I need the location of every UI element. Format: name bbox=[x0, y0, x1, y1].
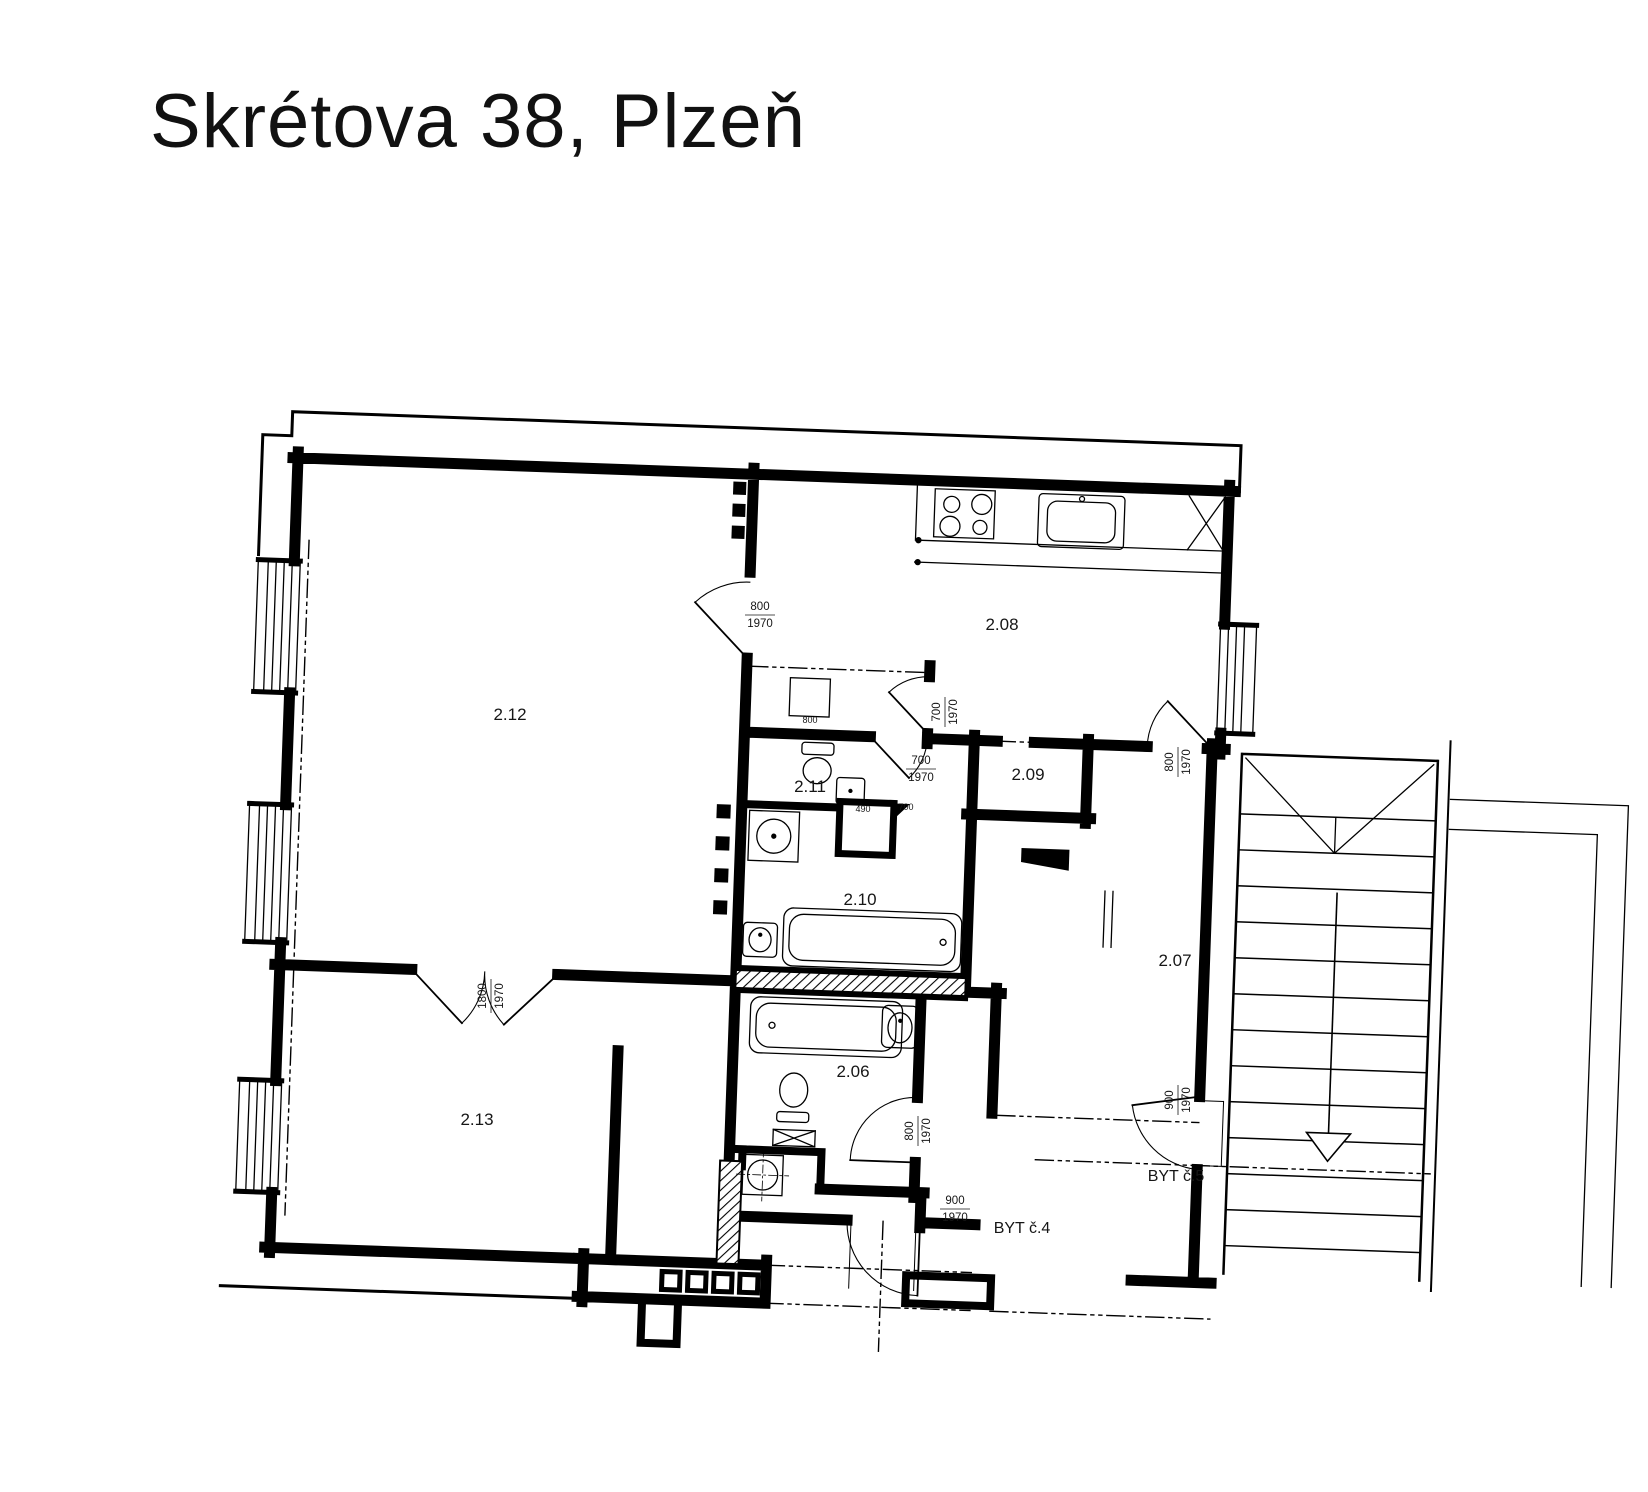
hatched-wall-vertical bbox=[716, 1160, 742, 1264]
floor-drain-icon bbox=[736, 1148, 790, 1202]
neighbour-contour bbox=[1431, 741, 1451, 1291]
door-dim-kitchen: 700 1970 bbox=[931, 697, 960, 727]
sink-2-10 bbox=[742, 922, 777, 957]
room-label-2-12: 2.12 bbox=[493, 705, 526, 724]
svg-text:1970: 1970 bbox=[494, 983, 506, 1009]
kitchen-counter bbox=[915, 486, 1226, 575]
room-label-2-06: 2.06 bbox=[836, 1062, 869, 1081]
kitchen-sink-icon bbox=[1037, 493, 1125, 549]
svg-text:1970: 1970 bbox=[921, 1118, 933, 1144]
svg-text:900: 900 bbox=[945, 1195, 964, 1207]
svg-text:1800: 1800 bbox=[477, 983, 489, 1009]
small-dim-700: 700 bbox=[898, 802, 913, 812]
walls-thick bbox=[263, 452, 1239, 1324]
svg-text:1970: 1970 bbox=[747, 618, 773, 630]
corridor-frame bbox=[1103, 891, 1113, 947]
boundary-lines bbox=[281, 540, 1452, 1370]
svg-text:700: 700 bbox=[931, 702, 943, 721]
room-label-2-09: 2.09 bbox=[1011, 765, 1044, 784]
door-leaves bbox=[401, 593, 1217, 1306]
svg-text:800: 800 bbox=[750, 601, 769, 613]
hall-cabinet bbox=[789, 678, 830, 717]
vent-box-icon bbox=[773, 1129, 816, 1146]
small-dim-490: 490 bbox=[855, 804, 870, 814]
door-dim-2-06: 800 1970 bbox=[904, 1116, 933, 1146]
apartment-label-byt5: BYT č.5 bbox=[1148, 1168, 1205, 1185]
svg-text:1970: 1970 bbox=[948, 699, 960, 725]
room-label-2-10: 2.10 bbox=[843, 890, 876, 909]
pilasters-outline bbox=[661, 1271, 758, 1292]
sink-2-06 bbox=[881, 1005, 918, 1048]
room-label-2-08: 2.08 bbox=[985, 615, 1018, 634]
stair-arrow-head bbox=[1306, 1132, 1351, 1162]
svg-text:1970: 1970 bbox=[1181, 749, 1193, 775]
plan-labels: 2.12 2.13 2.08 2.09 2.10 2.11 2.06 2.07 … bbox=[460, 601, 1204, 1237]
svg-text:900: 900 bbox=[1164, 1090, 1176, 1109]
staircase bbox=[1223, 754, 1437, 1281]
room-label-2-11: 2.11 bbox=[794, 777, 826, 796]
door-dim-hall-east: 800 1970 bbox=[1164, 747, 1193, 777]
svg-text:1970: 1970 bbox=[942, 1212, 968, 1224]
stove-icon bbox=[934, 489, 996, 539]
small-dim-800: 800 bbox=[802, 715, 817, 725]
toilet-2-06 bbox=[777, 1073, 811, 1123]
svg-text:1970: 1970 bbox=[1181, 1087, 1193, 1113]
room-label-2-13: 2.13 bbox=[460, 1110, 493, 1129]
room-label-2-07: 2.07 bbox=[1158, 951, 1191, 970]
washing-machine-icon bbox=[748, 810, 800, 862]
neighbour-roof-lines bbox=[1433, 799, 1628, 1287]
stair-direction-arrow bbox=[1329, 893, 1338, 1133]
floor-plan-drawing: 2.12 2.13 2.08 2.09 2.10 2.11 2.06 2.07 … bbox=[0, 0, 1648, 1492]
door-dim-byt4: 900 1970 bbox=[940, 1195, 970, 1224]
svg-text:800: 800 bbox=[1164, 752, 1176, 771]
svg-text:800: 800 bbox=[904, 1121, 916, 1140]
bathtub-2-10 bbox=[782, 908, 962, 972]
svg-text:700: 700 bbox=[911, 755, 930, 767]
chimney-block bbox=[1021, 848, 1070, 871]
door-dim-lobby: 700 1970 bbox=[906, 755, 936, 784]
svg-text:1970: 1970 bbox=[908, 772, 934, 784]
door-dim-2-12-hall: 800 1970 bbox=[745, 601, 775, 630]
door-dim-2-12-2-13: 1800 1970 bbox=[477, 979, 506, 1013]
bathtub-2-06 bbox=[749, 996, 903, 1057]
floor-plan-page: Skrétova 38, Plzeň bbox=[0, 0, 1648, 1492]
apartment-label-byt4: BYT č.4 bbox=[994, 1220, 1051, 1237]
